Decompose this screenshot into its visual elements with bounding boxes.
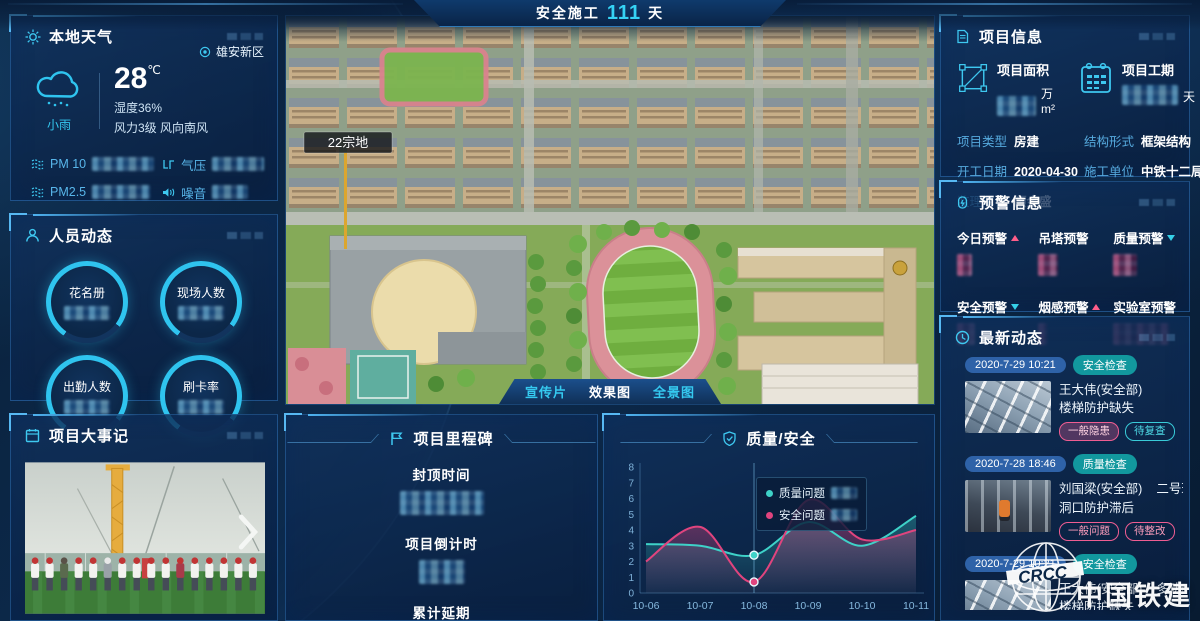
legend-label: 质量问题 [779, 485, 825, 501]
project-field: 施工单位中铁十二局 [1084, 161, 1200, 180]
calendar-note-icon [25, 428, 41, 444]
metric-noise: 噪音 [162, 183, 264, 202]
redacted-value [419, 560, 465, 584]
stat-ring: 刷卡率 [160, 355, 242, 437]
stat-ring: 花名册 [46, 261, 128, 343]
feed-title: 最新动态 [979, 327, 1043, 348]
deco-wing [620, 434, 712, 443]
legend-row: 质量问题 [766, 485, 857, 501]
entry-date: 2020-7-29 10:21 [965, 357, 1066, 373]
gauge-icon [162, 159, 175, 170]
view-tab[interactable]: 全景图 [653, 382, 695, 401]
redacted-warning-count [957, 254, 972, 276]
humidity-label: 湿度36% [114, 98, 208, 118]
entry-place: 二号球馆 [1156, 480, 1183, 498]
location-label: 雄安新区 [216, 43, 264, 60]
project-field: 开工日期2020-04-30 [957, 161, 1078, 180]
field-label: 项目类型 [957, 135, 1007, 149]
site-3d-render: 22宗地 [286, 16, 935, 405]
svg-text:5: 5 [628, 510, 634, 521]
entry-person: 王大伟(安全部) [1059, 381, 1142, 399]
stat-ring-cell: 出勤人数 [35, 355, 139, 437]
safe-days-label: 安全施工 [536, 3, 600, 23]
personnel-title: 人员动态 [49, 225, 113, 246]
redacted-warning-count [1113, 254, 1137, 276]
entry-photo [965, 381, 1051, 433]
view-tabs: 宣传片 效果图 全景图 [499, 379, 721, 404]
calendar-icon [1078, 60, 1114, 96]
entry-tag: 待复查 [1125, 422, 1175, 441]
metric-pressure: 气压 [162, 155, 264, 174]
milestone-label: 累计延期 [413, 602, 471, 621]
svg-text:7: 7 [628, 478, 634, 489]
warning-item: 质量预警 [1113, 228, 1179, 281]
entry-person: 刘国梁(安全部) [1059, 480, 1142, 498]
svg-text:6: 6 [628, 494, 634, 505]
redacted-count [178, 400, 224, 414]
svg-text:0: 0 [628, 589, 634, 600]
stat-ring-cell: 刷卡率 [149, 355, 253, 437]
legend-dot [766, 512, 773, 519]
project-info-panel: 项目信息 项目面积 万m² [940, 15, 1190, 177]
svg-text:3: 3 [628, 541, 634, 552]
rain-cloud-icon [33, 70, 85, 110]
milestone-item: 封顶时间 [400, 464, 484, 520]
trend-arrow-icon [1011, 304, 1019, 310]
warning-label: 实验室预警 [1113, 297, 1176, 316]
redacted-value [212, 157, 264, 171]
legend-dot [766, 490, 773, 497]
speaker-icon [162, 187, 175, 198]
svg-text:8: 8 [628, 463, 634, 474]
warning-item: 今日预警 [957, 228, 1032, 281]
ring-label: 花名册 [69, 284, 105, 301]
svg-text:10-09: 10-09 [795, 600, 822, 612]
svg-text:10-11: 10-11 [903, 600, 929, 612]
svg-text:10-08: 10-08 [741, 600, 768, 612]
safe-days-unit: 天 [648, 3, 664, 23]
field-label: 施工单位 [1084, 165, 1134, 179]
milestone-title: 项目里程碑 [413, 428, 493, 449]
feed-entry[interactable]: 2020-7-29 10:21 安全检查 王大伟(安全部) 楼梯防护缺失 [965, 355, 1183, 441]
legend-label: 安全问题 [779, 507, 825, 523]
person-icon [25, 228, 41, 244]
field-value: 中铁十二局 [1141, 165, 1200, 179]
group-photo-illustration [25, 457, 265, 619]
view-tab[interactable]: 效果图 [589, 382, 631, 401]
svg-text:2: 2 [628, 557, 634, 568]
alarm-icon [955, 195, 971, 211]
field-value: 2020-04-30 [1014, 165, 1078, 179]
redacted-value [212, 185, 248, 199]
trend-arrow-icon [1092, 304, 1100, 310]
clock-icon [955, 330, 971, 346]
deco-dashes [1139, 33, 1175, 40]
stat-ring: 现场人数 [160, 261, 242, 343]
quality-safety-title: 质量/安全 [746, 428, 815, 449]
condition-label: 小雨 [33, 116, 85, 133]
crcc-name: 中国铁建 [1076, 574, 1192, 613]
field-value: 房建 [1014, 135, 1039, 149]
shield-check-icon [722, 431, 738, 447]
redacted-count [178, 306, 224, 320]
entry-photo [965, 480, 1051, 532]
stat-ring-cell: 现场人数 [149, 261, 253, 343]
trend-arrow-icon [1167, 235, 1175, 241]
header-line-left [8, 3, 403, 5]
ring-label: 现场人数 [177, 284, 225, 301]
entry-kind: 质量检查 [1073, 454, 1137, 474]
deco-wing [287, 434, 379, 443]
wind-label: 风力3级 风向南风 [114, 118, 208, 138]
field-label: 结构形式 [1084, 135, 1134, 149]
ring-label: 刷卡率 [183, 378, 219, 395]
redacted-value [92, 157, 154, 171]
location-badge: 雄安新区 [199, 43, 264, 60]
deco-dashes [1139, 199, 1175, 206]
waves-icon [31, 159, 44, 170]
stat-label: 项目面积 [997, 60, 1064, 79]
milestone-list: 封顶时间 项目倒计时 累计延期 [286, 451, 597, 621]
trend-arrow-icon [1011, 235, 1019, 241]
project-field: 结构形式框架结构 [1084, 131, 1200, 150]
weather-condition-block: 小雨 [33, 70, 85, 133]
svg-text:10-06: 10-06 [633, 600, 660, 612]
milestone-item: 累计延期 [413, 602, 471, 621]
view-tab[interactable]: 宣传片 [525, 382, 567, 401]
milestone-photo [25, 457, 265, 619]
redacted-value [831, 487, 857, 499]
sun-gear-icon [25, 29, 41, 45]
deco-wing [826, 434, 918, 443]
location-pin-icon [199, 46, 211, 58]
ring-label: 出勤人数 [63, 378, 111, 395]
deco-dashes [227, 232, 263, 239]
metric-pm10: PM 10 [31, 155, 154, 174]
crcc-logo: CRCC 中国铁建 [1004, 535, 1192, 619]
redacted-count [64, 306, 110, 320]
warning-label: 今日预警 [957, 228, 1007, 247]
temperature: 28℃ [114, 64, 208, 94]
top-header: 安全施工 111 天 [0, 0, 1200, 30]
milestone-label: 封顶时间 [400, 464, 484, 484]
redacted-count [64, 400, 110, 414]
area-icon [957, 60, 989, 96]
warnings-title: 预警信息 [979, 192, 1043, 213]
field-label: 开工日期 [957, 165, 1007, 179]
milestone-item: 项目倒计时 [405, 533, 478, 589]
entry-tags: 一般隐患 待复查 [1059, 422, 1175, 441]
events-panel: 项目大事记 [10, 414, 278, 621]
header-line-right [797, 3, 1192, 5]
feed-entry[interactable]: 2020-7-28 18:46 质量检查 刘国梁(安全部) 二号球馆 洞口防护滞… [965, 454, 1183, 540]
stat-ring-cell: 花名册 [35, 261, 139, 343]
svg-text:1: 1 [628, 573, 634, 584]
redacted-value [997, 96, 1036, 116]
stat-area: 项目面积 万m² [957, 60, 1064, 116]
warning-label: 质量预警 [1113, 228, 1163, 247]
field-value: 框架结构 [1141, 135, 1191, 149]
warnings-panel: 预警信息 今日预警 吊塔预警 质量预警 [940, 181, 1190, 312]
safe-days-banner: 安全施工 111 天 [414, 0, 786, 27]
entry-issue: 洞口防护滞后 [1059, 499, 1183, 517]
deco-wing [503, 434, 595, 443]
redacted-value [400, 491, 484, 515]
stat-ring: 出勤人数 [46, 355, 128, 437]
chart-tooltip: 质量问题 安全问题 [756, 477, 867, 531]
quality-safety-panel: 质量/安全 01234567810-0610-0710-0810-0910-10… [603, 414, 935, 621]
milestone-label: 项目倒计时 [405, 533, 478, 553]
warning-label: 吊塔预警 [1038, 228, 1088, 247]
milestone-panel: 项目里程碑 封顶时间 项目倒计时 累计延期 [285, 414, 598, 621]
project-field: 项目类型房建 [957, 131, 1078, 150]
legend-row: 安全问题 [766, 507, 857, 523]
redacted-value [1122, 85, 1178, 105]
redacted-warning-count [1038, 254, 1058, 276]
divider [99, 73, 100, 129]
svg-text:10-10: 10-10 [849, 600, 876, 612]
svg-text:4: 4 [628, 526, 634, 537]
entry-issue: 楼梯防护缺失 [1059, 399, 1175, 417]
stat-duration: 项目工期 天 [1078, 60, 1195, 116]
waves-icon [31, 187, 44, 198]
warning-label: 安全预警 [957, 297, 1007, 316]
personnel-panel: 人员动态 花名册 现场人数 [10, 214, 278, 401]
stat-label: 项目工期 [1122, 60, 1195, 79]
deco-dashes [227, 33, 263, 40]
stat-unit: 万m² [1041, 85, 1064, 116]
flag-icon [389, 431, 405, 447]
entry-kind: 安全检查 [1073, 355, 1137, 375]
entry-tag: 一般隐患 [1059, 422, 1119, 441]
redacted-value [831, 509, 857, 521]
warning-item: 吊塔预警 [1038, 228, 1107, 281]
plot-label: 22宗地 [328, 135, 368, 150]
carousel-next-button[interactable] [237, 515, 259, 549]
warning-label: 烟感预警 [1038, 297, 1088, 316]
document-icon [955, 29, 971, 45]
svg-text:10-07: 10-07 [687, 600, 714, 612]
safe-days-value: 111 [607, 3, 641, 23]
metric-pm25: PM2.5 [31, 183, 154, 202]
site-render-view: 22宗地 宣传片 效果图 全景图 [285, 15, 935, 405]
deco-dashes [1139, 334, 1175, 341]
weather-panel: 本地天气 雄安新区 小雨 28℃ 湿度36% 风力3级 风向南风 [10, 15, 278, 201]
stat-unit: 天 [1183, 88, 1195, 105]
entry-date: 2020-7-28 18:46 [965, 456, 1066, 472]
redacted-value [92, 185, 150, 199]
dashboard: 安全施工 111 天 本地天气 雄安新区 小雨 [0, 0, 1200, 621]
